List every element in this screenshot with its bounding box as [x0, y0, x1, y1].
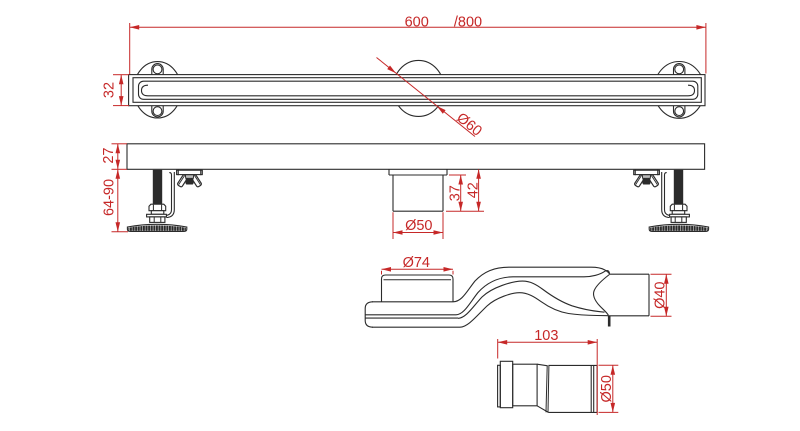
svg-text:42: 42 [465, 182, 481, 198]
svg-text:64-90: 64-90 [102, 179, 118, 216]
svg-text:37: 37 [447, 185, 463, 201]
svg-text:600: 600 [405, 15, 429, 31]
svg-text:/800: /800 [454, 15, 482, 31]
svg-text:27: 27 [101, 148, 117, 164]
svg-text:Ø74: Ø74 [403, 255, 430, 271]
svg-text:Ø50: Ø50 [405, 218, 432, 234]
svg-text:Ø40: Ø40 [653, 281, 669, 308]
svg-text:32: 32 [102, 82, 118, 98]
svg-text:Ø50: Ø50 [599, 375, 615, 402]
svg-text:103: 103 [534, 328, 558, 344]
